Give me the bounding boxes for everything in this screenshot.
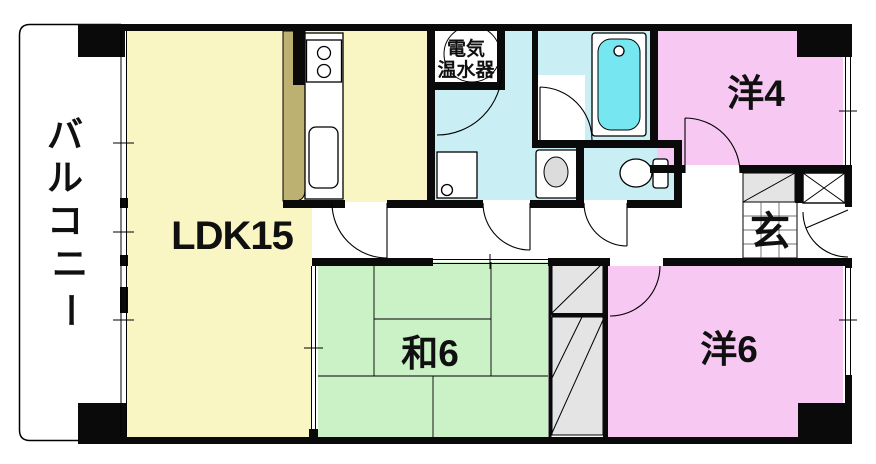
wall-closet-divider xyxy=(552,313,603,317)
wall-closet-right xyxy=(603,258,608,437)
wall-ldk-washroom xyxy=(427,24,435,208)
wall-hall-bottom-b xyxy=(548,258,610,266)
toilet-bowl xyxy=(620,159,652,187)
stove-burner-2 xyxy=(318,65,331,78)
wall-closet-left xyxy=(549,262,552,437)
wall-right-mid2 xyxy=(845,258,852,268)
balcony-char-2: ル xyxy=(47,157,83,198)
wall-western4-bottom-a xyxy=(650,165,685,173)
wall-hall-bottom-a xyxy=(312,258,433,266)
room-western4-label: 洋4 xyxy=(727,73,785,114)
wall-entrance-stub xyxy=(795,173,803,203)
wall-top xyxy=(120,24,852,31)
wall-partition-foot xyxy=(309,429,318,437)
pillar-top-right xyxy=(797,24,852,57)
balcony-char-5: ー xyxy=(50,292,91,328)
wall-hall-top-c xyxy=(435,200,483,208)
wall-western4-bottom-b xyxy=(740,165,847,173)
room-japanese-label: 和6 xyxy=(401,333,459,374)
wall-bottom xyxy=(120,437,852,444)
pillar-top-left xyxy=(78,24,125,57)
wall-right-low xyxy=(845,375,852,403)
toilet-tank xyxy=(653,159,668,188)
wall-bath-bottom xyxy=(532,140,682,148)
balcony-char-1: バ xyxy=(47,114,83,155)
room-western6-label: 洋6 xyxy=(700,329,758,370)
floor-plan-page: LDK15 和6 洋4 洋6 玄 電気 温水器 バ ル コ ニ ー xyxy=(0,0,876,464)
wall-bath-western4 xyxy=(650,24,658,148)
balcony-char-4: ニ xyxy=(52,243,88,284)
bathtub-drain xyxy=(614,46,624,56)
wall-hall-top-e xyxy=(627,200,674,208)
kitchen xyxy=(283,31,343,201)
washbasin-bowl xyxy=(544,157,568,187)
wall-hall-top-b xyxy=(387,200,427,208)
washing-machine-drain xyxy=(442,185,453,196)
wall-alcove-bottom xyxy=(427,82,505,90)
wall-bath-left xyxy=(532,24,538,140)
bath-door-swing-area xyxy=(538,75,585,140)
pillar-bottom-right xyxy=(798,403,852,444)
kitchen-sink xyxy=(309,127,338,188)
wall-hall-top-a xyxy=(283,200,345,208)
water-heater-label-line1: 電気 xyxy=(447,37,485,60)
washroom-corridor-floor xyxy=(505,31,532,90)
stove-burner-1 xyxy=(318,47,331,60)
wall-hall-bottom-c xyxy=(663,258,845,266)
room-ldk-floor xyxy=(127,31,427,202)
entrance-label: 玄 xyxy=(750,210,790,254)
wall-toilet-right xyxy=(674,140,682,208)
wall-kitchen-stub xyxy=(293,31,305,85)
floor-plan-svg: LDK15 和6 洋4 洋6 玄 電気 温水器 バ ル コ ニ ー xyxy=(0,0,876,464)
pillar-bottom-left xyxy=(78,403,127,444)
water-heater-label-line2: 温水器 xyxy=(437,59,495,81)
room-ldk-label: LDK15 xyxy=(171,214,293,258)
wall-hall-top-d xyxy=(530,200,576,208)
balcony-char-3: コ xyxy=(47,200,83,241)
wall-toilet-left xyxy=(576,148,584,208)
